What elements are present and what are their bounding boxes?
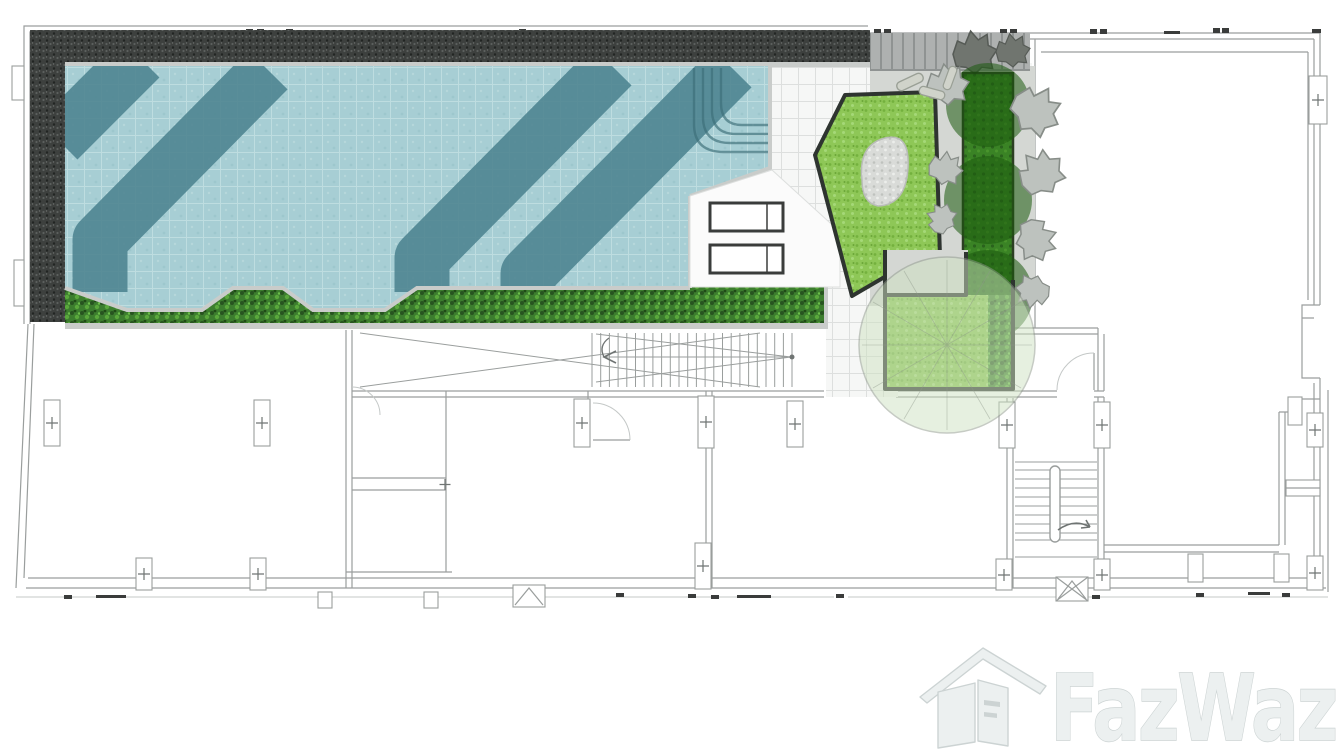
floor-plan-page: FazWaz bbox=[0, 0, 1342, 754]
main-staircase bbox=[592, 333, 795, 387]
brand-text: FazWaz bbox=[1050, 655, 1336, 754]
sun-lounger bbox=[710, 203, 783, 231]
entry-step-symbol bbox=[513, 585, 545, 607]
rear-staircase bbox=[1015, 462, 1097, 557]
sun-lounger bbox=[710, 245, 783, 273]
tree-canopy-circle bbox=[859, 257, 1035, 433]
fazwaz-watermark: FazWaz bbox=[920, 648, 1336, 754]
window-tick bbox=[318, 592, 332, 608]
swimming-pool bbox=[58, 58, 772, 310]
entry-step-symbol bbox=[1056, 577, 1088, 601]
window-tick bbox=[1188, 554, 1203, 582]
house-logo-icon bbox=[920, 648, 1046, 748]
window-tick bbox=[1274, 554, 1289, 582]
window-tick bbox=[14, 260, 24, 306]
floor-plan-drawing: FazWaz bbox=[0, 0, 1342, 754]
corridor-cross-brace bbox=[360, 333, 760, 387]
window-horizontal bbox=[1286, 480, 1320, 496]
door-swing-terrace bbox=[1057, 353, 1094, 390]
window-tick bbox=[424, 592, 438, 608]
stair-up-arrow bbox=[1058, 520, 1090, 530]
door-swing-center bbox=[588, 391, 630, 440]
window-tick bbox=[1288, 397, 1302, 425]
window-tick bbox=[12, 66, 24, 100]
